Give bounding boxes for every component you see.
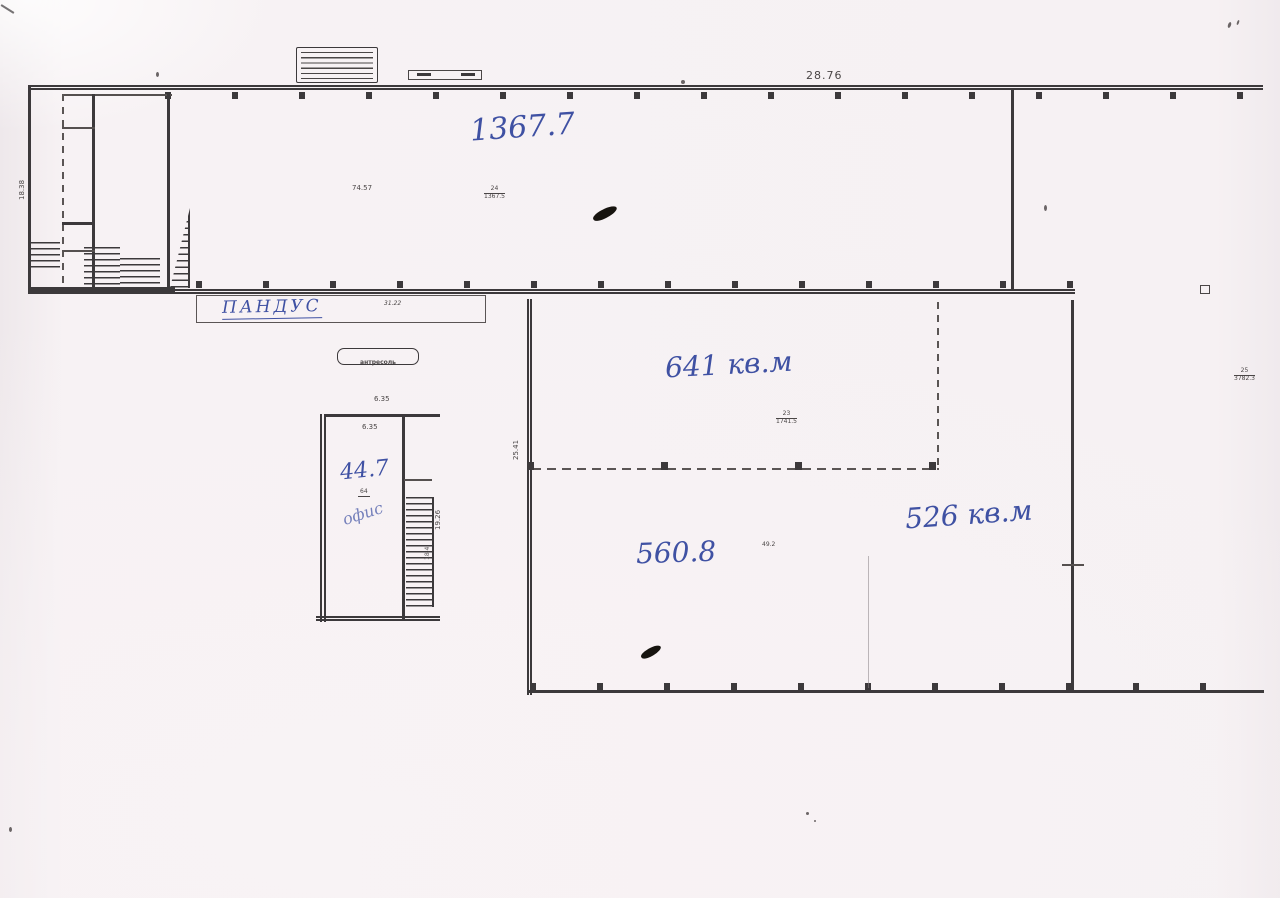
office-bottom-wall bbox=[316, 616, 440, 621]
dim-office-inner: 6.35 bbox=[362, 423, 378, 431]
column-marks-bottom bbox=[530, 683, 1262, 690]
partition-2 bbox=[62, 222, 95, 225]
dim-hall2-height: 25.41 bbox=[512, 440, 520, 460]
mid-dotted-vertical bbox=[937, 302, 939, 468]
block-bottom-wall bbox=[28, 287, 175, 294]
office-left-wall bbox=[320, 414, 326, 622]
speck-bottom-mid-1 bbox=[806, 812, 809, 815]
stairs-outside bbox=[28, 242, 60, 268]
hall2-left-wall bbox=[527, 299, 532, 695]
dim-hall-inner: 74.57 bbox=[352, 184, 372, 192]
handwritten-area-right: 526 кв.м bbox=[904, 494, 1033, 536]
title-strip bbox=[408, 70, 482, 80]
handwritten-ramp: ПАНДУС bbox=[222, 296, 322, 318]
mezzanine-tag: антресоль bbox=[337, 348, 419, 365]
block-top-line bbox=[62, 94, 172, 96]
stairs-inner-a bbox=[84, 247, 120, 287]
speck-top-mid bbox=[681, 80, 685, 84]
ink-blob-bottom bbox=[639, 643, 662, 661]
title-strip-mark-left bbox=[417, 73, 431, 76]
ink-blob-top bbox=[591, 203, 618, 223]
dim-top-length: 28.76 bbox=[806, 69, 843, 82]
partition-1 bbox=[62, 127, 95, 129]
column-marks-hall-bottom bbox=[196, 281, 1076, 288]
office-top-wall bbox=[326, 414, 440, 417]
hall-bottom-wall bbox=[175, 289, 1075, 294]
speck-bottom-left bbox=[9, 827, 12, 832]
ramp-text: ПАНДУС bbox=[222, 296, 322, 320]
office-right-wall bbox=[402, 414, 405, 620]
title-stamp bbox=[296, 47, 378, 83]
mezzanine-label: антресоль bbox=[360, 359, 396, 366]
handwritten-area-mid: 641 кв.м bbox=[664, 345, 793, 385]
dim-office-inner2: 18.4 bbox=[424, 547, 431, 560]
speck-top-tick bbox=[156, 72, 159, 77]
scan-streak-top-left bbox=[1, 4, 15, 14]
column-mark-right bbox=[1200, 285, 1210, 294]
handwritten-office-label: офис bbox=[340, 498, 385, 529]
dim-office-depth: 19.26 bbox=[434, 510, 442, 530]
room-label-right: 25 3782.3 bbox=[1234, 368, 1255, 383]
handwritten-office-number: 44.7 bbox=[339, 456, 390, 486]
room-area-hall2: 1741.5 bbox=[776, 419, 797, 426]
speck-top-right-1 bbox=[1227, 22, 1232, 29]
dim-office-top: 6.35 bbox=[374, 395, 390, 403]
hall2-right-wall bbox=[1071, 300, 1074, 693]
column-marks-mid bbox=[527, 462, 946, 470]
top-wall bbox=[28, 85, 1263, 90]
title-strip-mark-right bbox=[461, 73, 475, 76]
dim-hall2-inner: 49.2 bbox=[762, 541, 775, 548]
office-ledge bbox=[404, 479, 432, 481]
speck-bottom-mid-2 bbox=[814, 820, 816, 822]
ramp-hatch-triangle bbox=[170, 208, 190, 288]
bottom-wall bbox=[527, 690, 1264, 693]
room-area-right: 3782.3 bbox=[1234, 376, 1255, 383]
speck-top-right-2 bbox=[1236, 20, 1240, 25]
dim-hall-width: 18.38 bbox=[18, 180, 26, 200]
right-wall-tick bbox=[1062, 564, 1084, 566]
speck-hall2 bbox=[1044, 205, 1047, 211]
handwritten-area-left: 560.8 bbox=[635, 535, 716, 571]
room-label-hall2: 23 1741.5 bbox=[776, 411, 797, 426]
column-marks-top bbox=[165, 92, 1261, 99]
dim-ramp-length: 31.22 bbox=[384, 300, 401, 307]
block-right-wall bbox=[167, 94, 170, 288]
room-area-hall: 1367.5 bbox=[484, 194, 505, 201]
hall-right-wall bbox=[1011, 88, 1014, 290]
room-no-office: 64 bbox=[358, 489, 370, 497]
corridor-wall-left bbox=[62, 94, 64, 288]
stairs-inner-b bbox=[120, 258, 160, 288]
handwritten-hall-area: 1367.7 bbox=[469, 106, 576, 148]
room-label-hall: 24 1367.5 bbox=[484, 186, 505, 201]
room-label-office: 64 bbox=[358, 489, 370, 497]
faint-divider bbox=[868, 556, 869, 688]
